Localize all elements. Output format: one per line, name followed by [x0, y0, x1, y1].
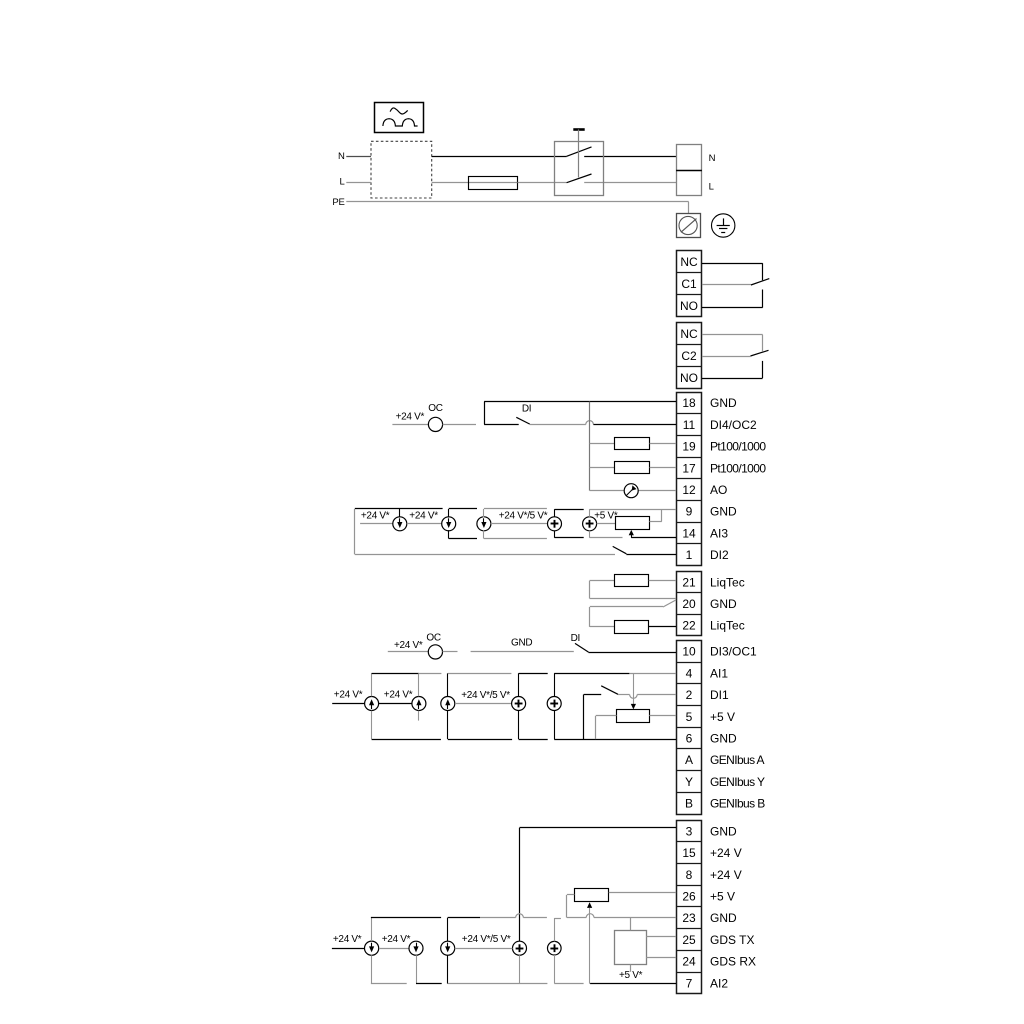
svg-text:Pt100/1000: Pt100/1000 — [710, 461, 766, 475]
svg-text:GND: GND — [710, 597, 737, 611]
svg-text:LiqTec: LiqTec — [710, 618, 745, 632]
svg-text:5: 5 — [686, 710, 693, 724]
svg-text:L: L — [340, 176, 345, 187]
svg-text:A: A — [685, 753, 693, 767]
svg-text:OC: OC — [428, 403, 442, 414]
svg-text:PE: PE — [332, 197, 344, 208]
svg-text:GND: GND — [710, 824, 737, 838]
svg-text:+24 V*: +24 V* — [394, 640, 423, 651]
svg-text:7: 7 — [686, 976, 693, 990]
svg-text:+5 V*: +5 V* — [594, 510, 618, 521]
svg-text:1: 1 — [686, 548, 693, 562]
svg-text:GDS RX: GDS RX — [710, 955, 756, 969]
svg-text:+24 V*: +24 V* — [409, 511, 438, 522]
svg-text:17: 17 — [682, 461, 696, 475]
svg-text:GND: GND — [710, 731, 737, 745]
svg-text:NC: NC — [680, 327, 698, 341]
svg-text:AI3: AI3 — [710, 526, 728, 540]
svg-text:DI: DI — [571, 633, 580, 644]
svg-text:DI1: DI1 — [710, 688, 729, 702]
svg-text:AO: AO — [710, 483, 727, 497]
svg-text:12: 12 — [682, 483, 696, 497]
svg-text:25: 25 — [682, 933, 696, 947]
svg-text:8: 8 — [686, 868, 693, 882]
svg-text:GND: GND — [710, 911, 737, 925]
svg-text:DI2: DI2 — [710, 548, 729, 562]
svg-text:+24 V: +24 V — [710, 846, 742, 860]
svg-text:C2: C2 — [681, 349, 697, 363]
svg-text:4: 4 — [686, 666, 693, 680]
svg-text:+24 V*: +24 V* — [396, 411, 425, 422]
svg-text:20: 20 — [682, 597, 696, 611]
svg-text:AI2: AI2 — [710, 976, 728, 990]
svg-text:OC: OC — [426, 632, 440, 643]
svg-text:N: N — [338, 151, 345, 162]
svg-text:NO: NO — [680, 371, 698, 385]
svg-text:+24 V*/5 V*: +24 V*/5 V* — [499, 511, 548, 522]
svg-text:DI3/OC1: DI3/OC1 — [710, 645, 757, 659]
svg-text:11: 11 — [683, 418, 696, 432]
svg-text:3: 3 — [686, 824, 693, 838]
svg-text:15: 15 — [682, 846, 696, 860]
svg-text:9: 9 — [686, 505, 693, 519]
svg-text:+24 V*: +24 V* — [334, 689, 363, 700]
svg-text:DI: DI — [522, 403, 531, 414]
svg-text:LiqTec: LiqTec — [710, 575, 745, 589]
svg-text:DI4/OC2: DI4/OC2 — [710, 418, 757, 432]
svg-text:26: 26 — [682, 889, 696, 903]
svg-text:14: 14 — [682, 526, 696, 540]
svg-text:+5 V: +5 V — [710, 889, 735, 903]
svg-text:23: 23 — [682, 911, 696, 925]
svg-text:+24 V*: +24 V* — [361, 511, 390, 522]
svg-text:2: 2 — [686, 688, 693, 702]
svg-text:GENIbus A: GENIbus A — [710, 753, 765, 767]
svg-text:GENIbus Y: GENIbus Y — [710, 775, 765, 789]
svg-text:GND: GND — [710, 505, 737, 519]
svg-text:+5 V*: +5 V* — [619, 970, 643, 981]
svg-text:GND: GND — [511, 637, 532, 648]
svg-text:Y: Y — [685, 775, 693, 789]
svg-text:GND: GND — [710, 396, 737, 410]
svg-text:10: 10 — [682, 645, 696, 659]
svg-text:GDS TX: GDS TX — [710, 933, 754, 947]
svg-text:24: 24 — [682, 955, 696, 969]
svg-text:+5 V: +5 V — [710, 710, 735, 724]
svg-text:NO: NO — [680, 299, 698, 313]
svg-text:AI1: AI1 — [710, 666, 728, 680]
svg-text:22: 22 — [682, 618, 696, 632]
svg-text:+24 V*: +24 V* — [382, 934, 411, 945]
svg-text:+24 V*/5 V*: +24 V*/5 V* — [462, 934, 511, 945]
svg-text:+24 V: +24 V — [710, 868, 742, 882]
svg-text:L: L — [709, 182, 714, 193]
svg-text:19: 19 — [682, 440, 696, 454]
svg-text:+24 V*/5 V*: +24 V*/5 V* — [461, 690, 510, 701]
svg-text:N: N — [709, 153, 716, 164]
svg-text:+24 V*: +24 V* — [384, 689, 413, 700]
svg-text:18: 18 — [682, 396, 696, 410]
svg-text:Pt100/1000: Pt100/1000 — [710, 440, 766, 454]
svg-text:NC: NC — [680, 255, 698, 269]
svg-text:+24 V*: +24 V* — [333, 934, 362, 945]
svg-text:C1: C1 — [681, 277, 697, 291]
svg-text:6: 6 — [686, 731, 693, 745]
svg-text:GENIbus B: GENIbus B — [710, 797, 765, 811]
svg-text:21: 21 — [682, 575, 696, 589]
svg-text:B: B — [685, 797, 693, 811]
